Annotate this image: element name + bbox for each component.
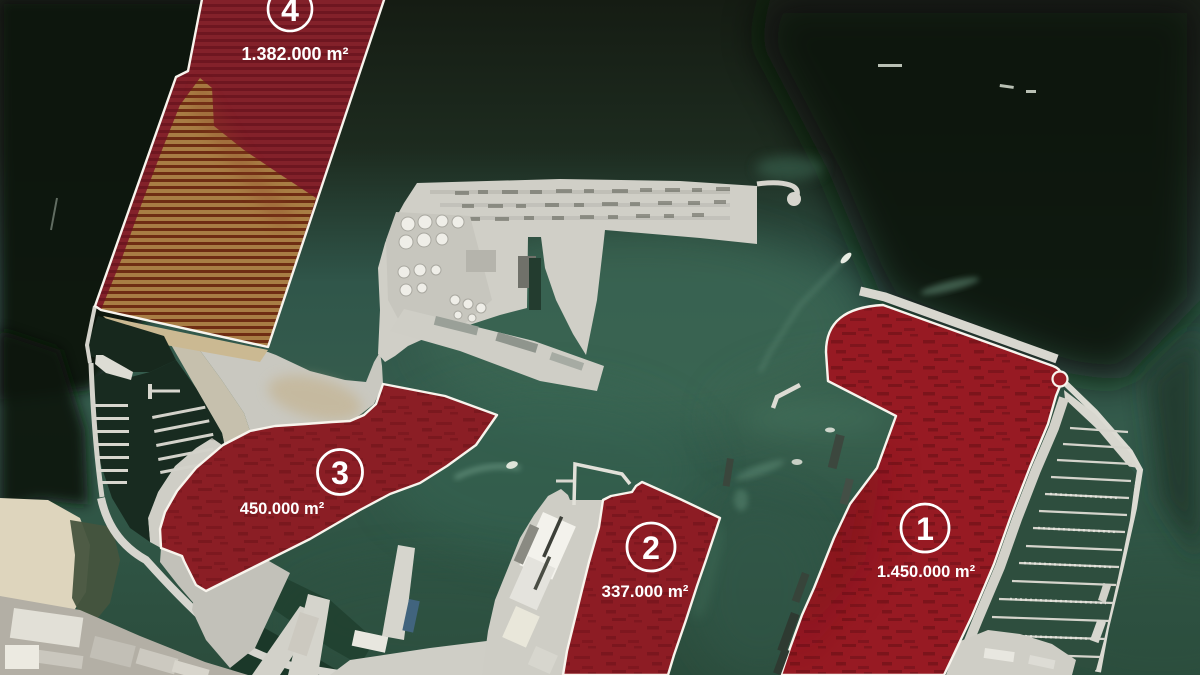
svg-text:450.000 m²: 450.000 m² bbox=[240, 500, 325, 518]
svg-text:1.382.000 m²: 1.382.000 m² bbox=[241, 44, 348, 64]
svg-text:1: 1 bbox=[916, 511, 934, 547]
svg-text:337.000 m²: 337.000 m² bbox=[602, 582, 689, 601]
svg-text:4: 4 bbox=[281, 0, 299, 28]
svg-text:3: 3 bbox=[331, 455, 349, 491]
svg-text:1.450.000 m²: 1.450.000 m² bbox=[877, 563, 976, 581]
svg-text:2: 2 bbox=[642, 530, 660, 566]
